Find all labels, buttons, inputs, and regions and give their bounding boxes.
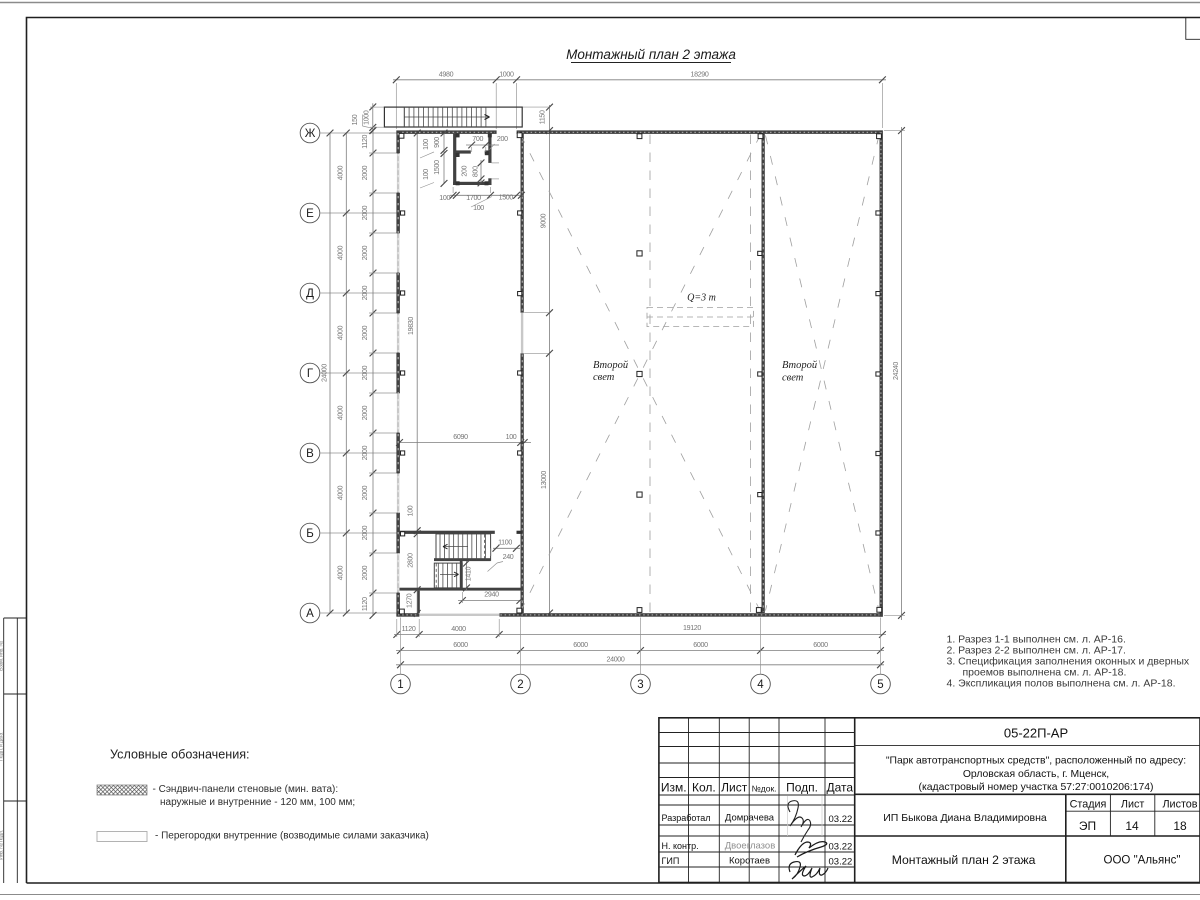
svg-text:2000: 2000 xyxy=(361,525,369,540)
svg-text:1120: 1120 xyxy=(361,134,369,148)
svg-text:1100: 1100 xyxy=(498,539,512,547)
svg-text:2000: 2000 xyxy=(361,565,369,580)
svg-text:Коротаев: Коротаев xyxy=(729,856,770,867)
svg-text:наружные и внутренние - 120 мм: наружные и внутренние - 120 мм, 100 мм; xyxy=(160,797,355,808)
svg-text:Кол.: Кол. xyxy=(692,781,716,795)
svg-text:Н. контр.: Н. контр. xyxy=(662,841,699,851)
svg-text:240: 240 xyxy=(503,553,514,561)
svg-text:Лист: Лист xyxy=(721,781,748,795)
svg-text:1000: 1000 xyxy=(362,110,370,125)
svg-text:Монтажный план 2 этажа: Монтажный план 2 этажа xyxy=(892,853,1036,867)
svg-text:№док.: №док. xyxy=(752,783,777,793)
svg-text:Лист: Лист xyxy=(1121,799,1145,811)
svg-text:Домрачева: Домрачева xyxy=(725,813,775,824)
svg-text:1: 1 xyxy=(397,679,403,691)
svg-text:5: 5 xyxy=(877,679,883,691)
svg-text:Q=3 т: Q=3 т xyxy=(687,293,716,304)
svg-text:2000: 2000 xyxy=(361,165,369,180)
svg-text:Второй: Второй xyxy=(593,360,629,371)
svg-text:900: 900 xyxy=(433,137,441,148)
svg-text:Е: Е xyxy=(306,208,314,220)
svg-text:- Сэндвич-панели стеновые (мин: - Сэндвич-панели стеновые (мин. вата): xyxy=(153,784,339,795)
svg-text:13000: 13000 xyxy=(540,471,548,489)
svg-text:6090: 6090 xyxy=(453,433,468,441)
svg-text:100: 100 xyxy=(422,139,430,150)
svg-text:1120: 1120 xyxy=(402,625,416,633)
svg-text:1120: 1120 xyxy=(361,597,369,611)
svg-text:2800: 2800 xyxy=(407,553,415,568)
svg-text:1150: 1150 xyxy=(539,110,547,124)
svg-text:Условные обозначения:: Условные обозначения: xyxy=(110,748,250,762)
svg-text:2000: 2000 xyxy=(361,485,369,500)
svg-text:В: В xyxy=(306,448,314,460)
svg-text:4980: 4980 xyxy=(439,71,454,79)
svg-text:ГИП: ГИП xyxy=(662,856,680,866)
svg-text:Двоеглазов: Двоеглазов xyxy=(725,841,776,852)
svg-text:2000: 2000 xyxy=(361,205,369,220)
svg-text:2000: 2000 xyxy=(361,445,369,460)
svg-text:"Парк автотранспортных средств: "Парк автотранспортных средств", располо… xyxy=(886,755,1186,766)
svg-text:Ж: Ж xyxy=(305,128,316,140)
svg-text:Взам. инв. №: Взам. инв. № xyxy=(0,641,5,671)
svg-text:03.22: 03.22 xyxy=(829,814,853,825)
svg-text:2000: 2000 xyxy=(361,325,369,340)
svg-text:Г: Г xyxy=(307,368,314,380)
svg-text:24000: 24000 xyxy=(321,364,329,382)
svg-text:800: 800 xyxy=(472,166,480,177)
svg-text:Д: Д xyxy=(306,288,314,300)
svg-text:24240: 24240 xyxy=(892,362,900,380)
svg-text:100: 100 xyxy=(422,169,430,180)
svg-text:Дата: Дата xyxy=(827,781,854,795)
svg-text:4000: 4000 xyxy=(451,625,466,633)
svg-text:ЭП: ЭП xyxy=(1079,819,1096,833)
svg-text:Б: Б xyxy=(306,528,314,540)
svg-text:Инв. № подл.: Инв. № подл. xyxy=(0,829,5,860)
svg-text:3: 3 xyxy=(637,679,643,691)
svg-text:700: 700 xyxy=(472,135,483,143)
svg-text:Подп. и дата: Подп. и дата xyxy=(0,732,5,761)
svg-text:4000: 4000 xyxy=(337,245,345,260)
svg-text:1410: 1410 xyxy=(465,566,473,581)
svg-text:2000: 2000 xyxy=(361,245,369,260)
svg-text:Изм.: Изм. xyxy=(661,781,687,795)
svg-text:100: 100 xyxy=(407,505,415,516)
svg-text:1270: 1270 xyxy=(406,593,414,608)
svg-text:Разработал: Разработал xyxy=(662,813,711,823)
svg-text:100: 100 xyxy=(439,194,450,202)
svg-text:Монтажный план 2 этажа: Монтажный план 2 этажа xyxy=(566,47,736,62)
svg-text:1000: 1000 xyxy=(499,71,514,79)
svg-text:А: А xyxy=(306,608,314,620)
svg-text:200: 200 xyxy=(497,135,508,143)
svg-text:150: 150 xyxy=(351,114,359,125)
svg-text:4000: 4000 xyxy=(337,405,345,420)
svg-text:1700: 1700 xyxy=(466,194,481,202)
svg-text:свет: свет xyxy=(593,372,615,383)
svg-text:2: 2 xyxy=(517,679,523,691)
svg-text:100: 100 xyxy=(506,433,517,441)
svg-text:4. Экспликация полов выполнена: 4. Экспликация полов выполнена см. л. АР… xyxy=(947,678,1176,690)
svg-text:03.22: 03.22 xyxy=(829,857,853,868)
svg-text:19830: 19830 xyxy=(407,317,415,335)
svg-text:Второй: Второй xyxy=(782,360,818,371)
svg-text:2000: 2000 xyxy=(361,285,369,300)
svg-text:Подп.: Подп. xyxy=(786,781,818,795)
svg-text:4000: 4000 xyxy=(337,325,345,340)
svg-text:4000: 4000 xyxy=(337,485,345,500)
svg-text:2940: 2940 xyxy=(484,591,499,599)
svg-text:14: 14 xyxy=(1125,819,1139,833)
svg-text:6000: 6000 xyxy=(453,641,468,649)
svg-text:ООО "Альянс": ООО "Альянс" xyxy=(1104,855,1181,867)
svg-text:1500: 1500 xyxy=(499,194,514,202)
svg-text:05-22П-АР: 05-22П-АР xyxy=(1004,726,1068,741)
svg-text:6000: 6000 xyxy=(573,641,588,649)
svg-text:Орловская область, г. Мценск,: Орловская область, г. Мценск, xyxy=(963,768,1109,780)
svg-text:19120: 19120 xyxy=(683,624,701,632)
svg-text:4000: 4000 xyxy=(337,565,345,580)
svg-text:ИП Быкова Диана Владимировна: ИП Быкова Диана Владимировна xyxy=(883,812,1047,824)
svg-text:свет: свет xyxy=(782,373,804,384)
svg-text:03.22: 03.22 xyxy=(829,842,853,853)
svg-text:Листов: Листов xyxy=(1162,799,1197,811)
svg-text:Стадия: Стадия xyxy=(1070,799,1107,811)
svg-text:24000: 24000 xyxy=(607,656,625,664)
svg-text:200: 200 xyxy=(460,165,468,176)
svg-text:6000: 6000 xyxy=(813,641,828,649)
svg-text:6000: 6000 xyxy=(693,641,708,649)
svg-text:2000: 2000 xyxy=(361,365,369,380)
svg-text:1500: 1500 xyxy=(433,160,441,175)
svg-text:(кадастровый номер участка 57:: (кадастровый номер участка 57:27:0010206… xyxy=(919,782,1154,793)
svg-text:18290: 18290 xyxy=(691,71,709,79)
svg-text:18: 18 xyxy=(1173,819,1187,833)
svg-text:9000: 9000 xyxy=(540,213,548,228)
svg-text:2000: 2000 xyxy=(361,405,369,420)
svg-text:4000: 4000 xyxy=(337,165,345,180)
svg-text:- Перегородки внутренние (возв: - Перегородки внутренние (возводимые сил… xyxy=(155,831,429,842)
svg-text:4: 4 xyxy=(757,679,764,691)
